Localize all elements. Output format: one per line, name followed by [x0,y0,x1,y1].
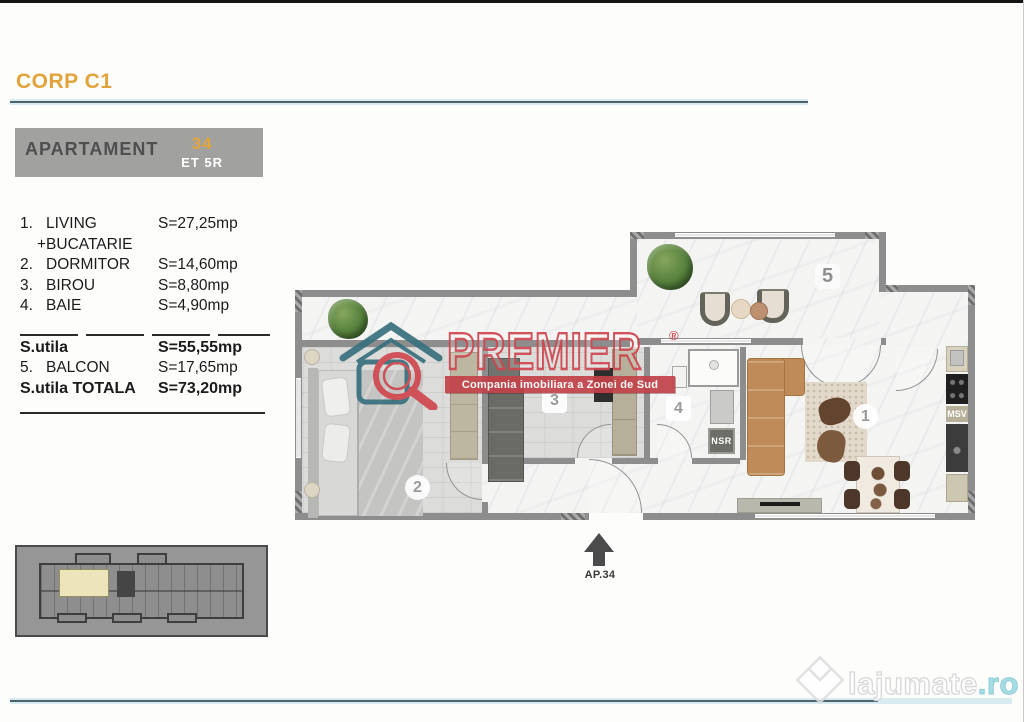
nightstand [304,482,320,498]
entrance-arrow-icon [593,551,605,566]
nsr-shaft: NSR [708,428,735,454]
list-divider-top [20,334,270,336]
key-plan-highlight-unit [59,569,109,597]
wall-hatch [968,285,975,305]
wardrobe [450,352,478,460]
wall [881,338,886,345]
lajumate-watermark: lajumate.ro [790,650,1020,710]
wall [302,340,630,347]
office-desk-tv [594,368,613,402]
room-label-bath: 4 [666,396,691,421]
wall [968,285,975,520]
summary-row-totala: S.utila TOTALA S=73,20mp [20,379,272,400]
entrance-arrow-icon [584,533,614,552]
wall [757,338,803,345]
window [296,378,301,458]
page-title: CORP C1 [16,70,112,94]
apartment-floor: ET 5R [181,155,223,170]
key-plan-balcony [167,613,197,623]
apartment-number: 34 [181,134,223,154]
wall [692,458,740,464]
list-divider-bottom [20,412,265,414]
wall [612,458,658,464]
dining-chair [844,489,860,509]
wall-hatch [630,232,644,239]
wall-hatch [295,491,302,513]
living-sofa [747,358,785,476]
wall-hatch [886,285,898,292]
apartment-box: APARTAMENT 34 ET 5R [15,128,263,177]
top-border [0,0,1023,3]
room-row-bath: 4. BAIE S=4,90mp [20,296,272,317]
room-label-bedroom: 2 [405,475,430,500]
window [661,339,751,343]
room-label-living: 1 [853,404,878,429]
kitchen-counter [946,474,968,502]
office-sofa [488,358,520,390]
key-plan-stairwell [117,571,135,597]
plant [328,299,368,339]
wall-hatch [865,232,879,239]
floor-plan: 5 2 3 4 NSR 1 [295,228,975,520]
washer [672,366,687,388]
dining-chair [894,489,910,509]
wall-hatch [295,290,302,312]
room-row-kitchen: +BUCATARIE [20,235,272,256]
office-sofa [488,388,524,482]
room-row-balcony: 5. BALCON S=17,65mp [20,358,272,379]
dining-chair [844,461,860,481]
fridge [946,424,968,472]
apartment-label: APARTAMENT [25,139,158,173]
balcony-side-table [731,299,751,319]
kitchen-sink [950,350,964,366]
room-row-bedroom: 2. DORMITOR S=14,60mp [20,255,272,276]
dining-chair [894,461,910,481]
balcony-chair [700,292,730,326]
nightstand [304,349,320,365]
wall-hatch [968,491,975,513]
wall [886,285,975,292]
pillow [321,423,351,464]
wall [295,290,637,297]
window [675,233,835,237]
tv [760,502,800,506]
cooktop [946,374,968,404]
wall [879,232,886,292]
balcony-side-table [750,302,768,320]
summary-row-utila: S.utila S=55,55mp [20,338,272,359]
room-label-balcony: 5 [815,264,840,289]
lajumate-tld: .ro [978,666,1019,701]
room-row-office: 3. BIROU S=8,80mp [20,276,272,297]
wall [630,232,637,296]
lajumate-diamond-logo-icon [790,650,850,710]
title-underline [10,99,808,105]
entry-opening [589,513,643,520]
key-plan-balcony [57,613,87,623]
room-list: 1. LIVING S=27,25mp +BUCATARIE 2. DORMIT… [20,214,272,414]
key-plan [15,545,268,637]
wall [740,347,746,460]
room-row-living: 1. LIVING S=27,25mp [20,214,272,235]
wall-hatch [561,513,585,520]
plant [647,244,693,290]
wall [644,347,650,458]
room-label-office: 3 [542,388,567,413]
entrance-label: AP.34 [572,569,628,581]
wall [482,502,488,513]
shower-drain [709,360,719,370]
key-plan-balcony [112,613,142,623]
lajumate-text: lajumate.ro [848,666,1019,702]
msv-label: MSV [946,406,968,422]
window [755,514,935,518]
listing-image: CORP C1 APARTAMENT 34 ET 5R 1. LIVING S=… [0,0,1024,722]
bath-sink [710,390,734,424]
pillow [321,377,351,418]
office-closet [612,349,637,456]
